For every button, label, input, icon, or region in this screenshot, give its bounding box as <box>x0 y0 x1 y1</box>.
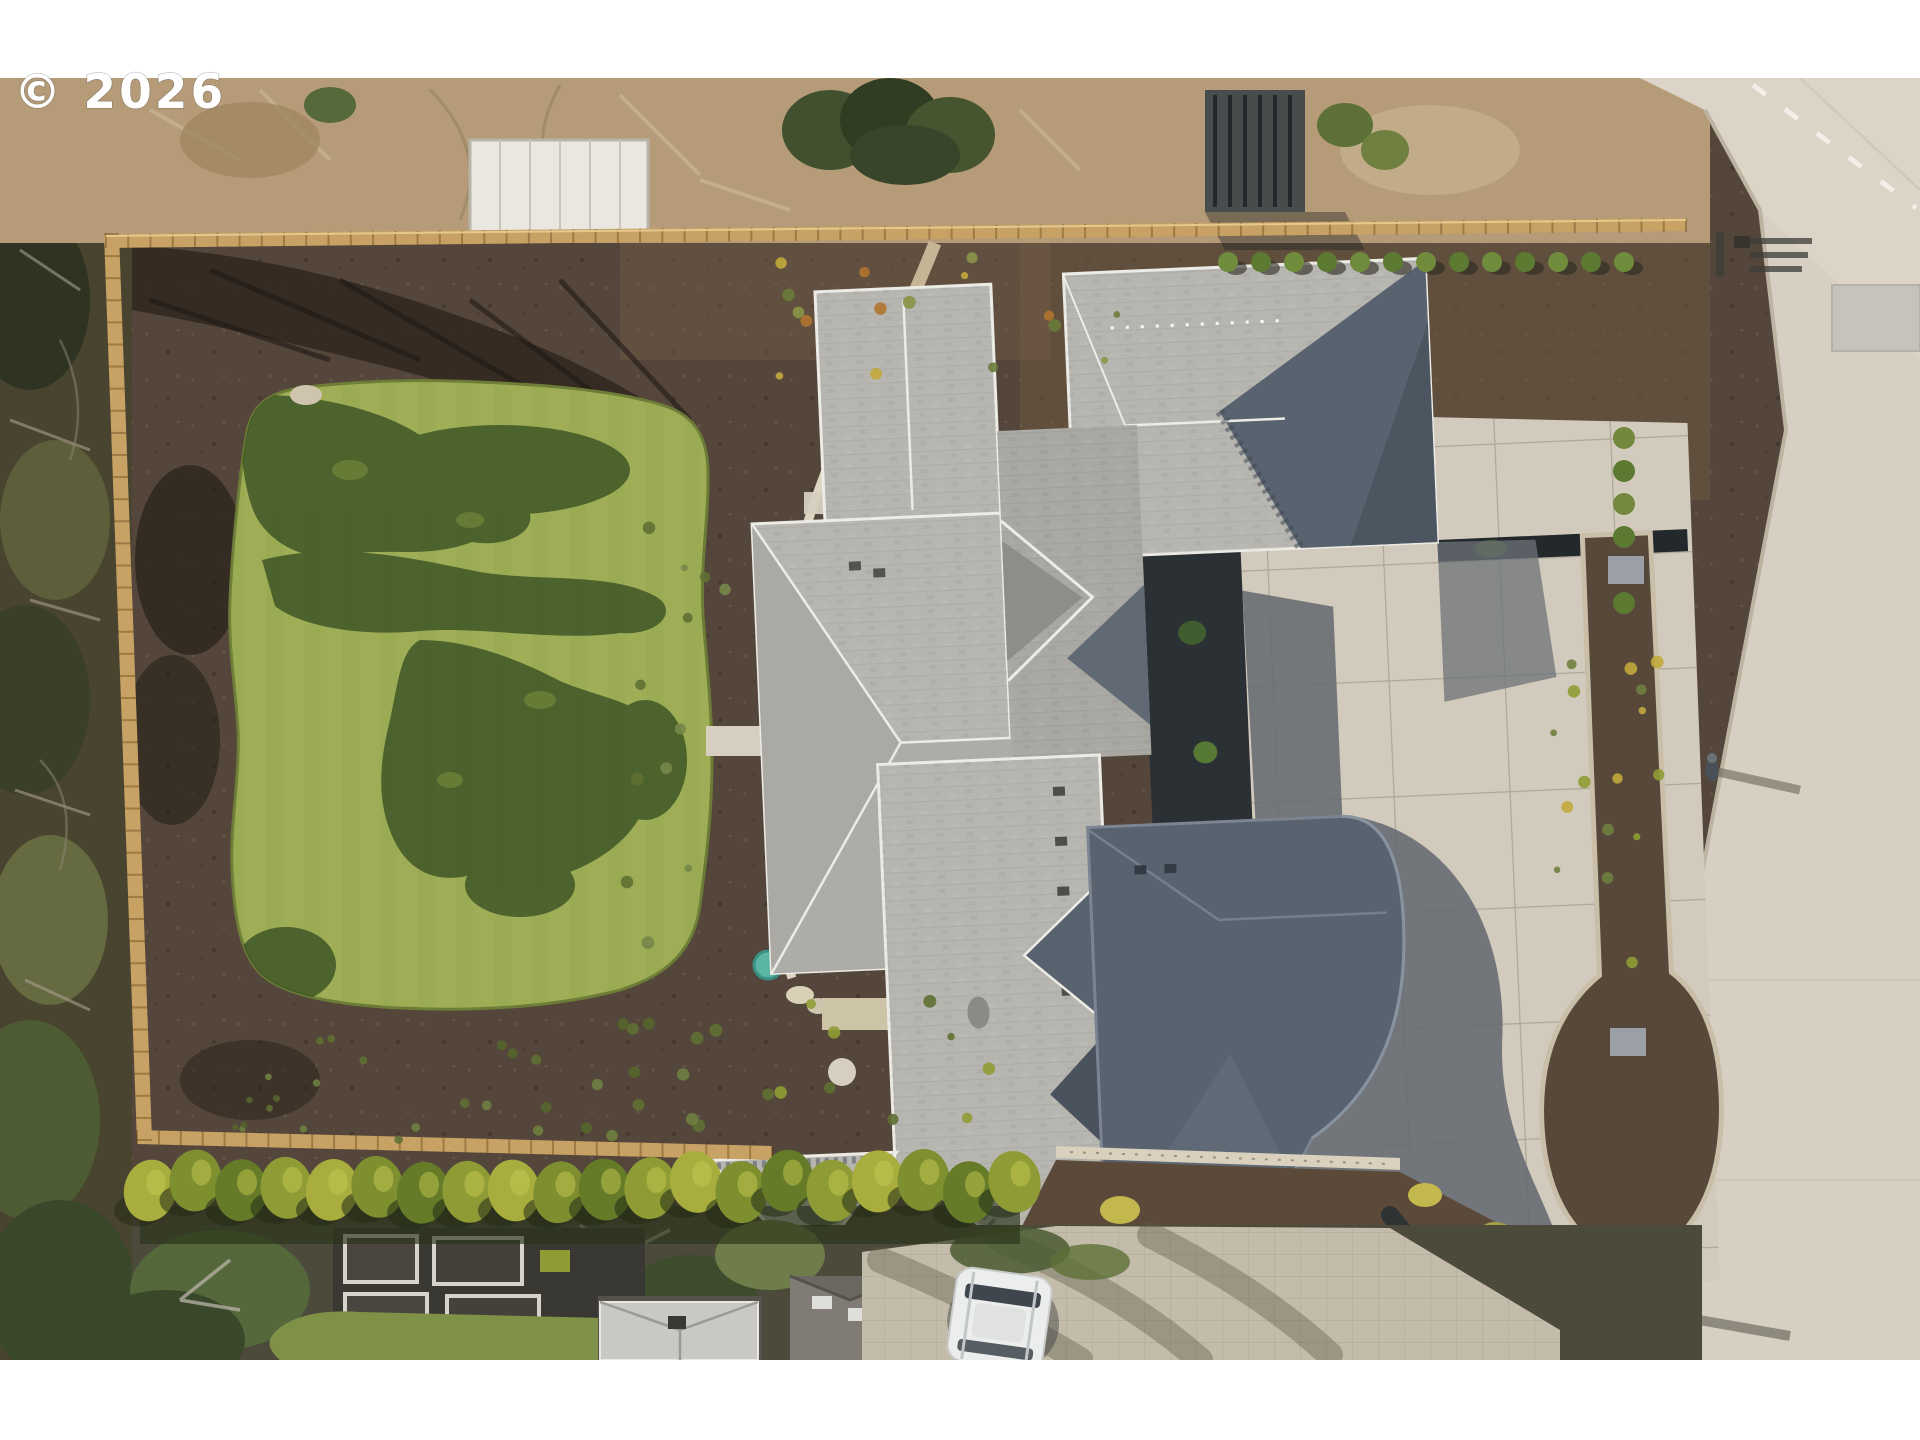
concrete-pad <box>822 998 890 1030</box>
bush <box>304 87 356 123</box>
photo-page: © 2026 <box>0 0 1920 1440</box>
round-paver <box>828 1058 856 1086</box>
aerial-photo: © 2026 <box>0 0 1920 1440</box>
neighbor-shed <box>598 1296 762 1360</box>
greenhouse <box>470 140 648 232</box>
roof-mid-strip <box>997 425 1151 761</box>
white-suv <box>941 1265 1066 1380</box>
bush <box>1361 130 1409 170</box>
neighbor-lawn <box>270 1311 636 1360</box>
utility-pad <box>1832 285 1920 351</box>
copyright-watermark: © 2026 <box>14 65 226 120</box>
new-lawn <box>196 380 720 1026</box>
neighbor-bottom <box>85 1220 1702 1390</box>
